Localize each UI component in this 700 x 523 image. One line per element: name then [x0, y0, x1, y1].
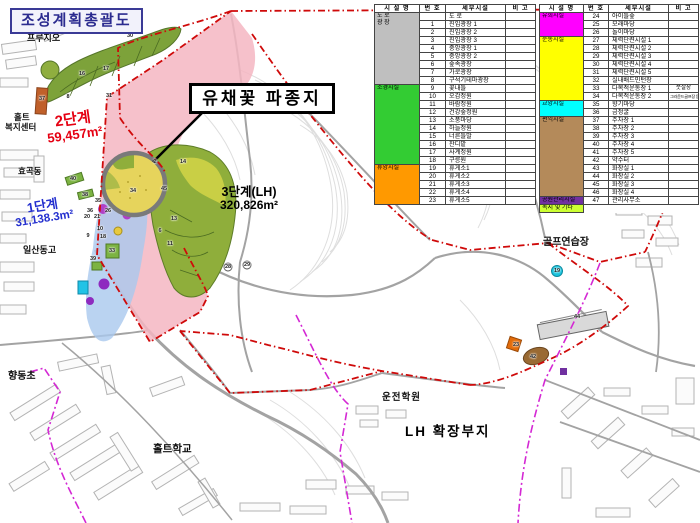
legend-cell — [669, 173, 699, 181]
legend-cell — [506, 125, 536, 133]
legend-cell: 다목적운동장 1 — [609, 85, 669, 93]
legend-row: 편익시설37주차장 1 — [540, 117, 699, 125]
legend-cell: 33 — [584, 85, 609, 93]
legend-cell — [669, 109, 699, 117]
legend-cell: 30 — [584, 61, 609, 69]
label-holt-school: 홀트학교 — [153, 441, 192, 456]
map-marker-20: 20 — [84, 214, 90, 220]
map-marker-8: 8 — [66, 94, 69, 100]
legend-cell: 바람정원 — [446, 101, 506, 109]
map-marker-38: 38 — [82, 192, 88, 198]
phase3-name: 3단계(LH) — [222, 185, 277, 199]
label-elementary: 향동초 — [8, 367, 36, 382]
legend-cell — [506, 61, 536, 69]
legend-cell: 체력단련시설 5 — [609, 69, 669, 77]
legend-cell — [506, 165, 536, 173]
map-marker-6: 6 — [158, 228, 161, 234]
legend-cell: 실내배드민턴장 — [609, 77, 669, 85]
legend-cell — [506, 157, 536, 165]
map-marker-19: 19 — [554, 268, 560, 274]
lh-expansion-label: LH 확장부지 — [405, 420, 490, 440]
legend-cell: 2 — [420, 29, 446, 37]
legend-row: 도 로 광 장도 로 — [375, 13, 536, 21]
legend-cell: 체력단련시설 1 — [609, 37, 669, 45]
legend-cell: 46 — [584, 189, 609, 197]
legend-cell: 37 — [584, 117, 609, 125]
legend-row: 교양시설35향기마당 — [540, 101, 699, 109]
phase3-label: 3단계(LH) 320,826m² — [220, 186, 278, 212]
legend-category: 교양시설 — [540, 101, 584, 117]
legend-table-right: 시 설 명번 호세부시설비 고유희시설24아이들숲25모래마당26놀이마당운동시… — [539, 4, 699, 213]
map-marker-17: 17 — [103, 66, 109, 72]
legend-cell: 45 — [584, 181, 609, 189]
legend-cell — [506, 117, 536, 125]
legend-cell — [669, 133, 699, 141]
legend-cell: 화장실 4 — [609, 189, 669, 197]
legend-cell — [669, 61, 699, 69]
legend-cell — [420, 13, 446, 21]
map-marker-33: 33 — [109, 248, 115, 254]
legend-cell: 소풍마당 — [446, 117, 506, 125]
legend-cell: 41 — [584, 149, 609, 157]
page-title: 조성계획총괄도 — [10, 8, 143, 34]
legend-cell — [506, 93, 536, 101]
legend-cell: 도 로 — [446, 13, 506, 21]
label-driving-school: 운전학원 — [382, 389, 421, 403]
legend-cell: 모래마당 — [609, 21, 669, 29]
legend-cell — [669, 125, 699, 133]
legend-cell: 24 — [584, 13, 609, 21]
legend-cell — [669, 197, 699, 205]
legend-cell — [506, 141, 536, 149]
legend-cell: 주차장 5 — [609, 149, 669, 157]
map-marker-37: 37 — [39, 96, 45, 102]
legend-cell: 7 — [420, 69, 446, 77]
legend-cell: 휴게소5 — [446, 197, 506, 205]
legend-cell: 18 — [420, 157, 446, 165]
legend-cell — [669, 157, 699, 165]
legend-cell: 꽃내들 — [446, 85, 506, 93]
map-marker-31: 31 — [106, 93, 112, 99]
label-holt-center-2: 복지센터 — [5, 121, 36, 133]
legend-cell — [609, 205, 669, 213]
legend-cell: 12 — [420, 109, 446, 117]
legend-cell — [669, 29, 699, 37]
legend-cell: 화장실 2 — [609, 173, 669, 181]
legend-cell: 주차장 1 — [609, 117, 669, 125]
legend-cell: 휴게소2 — [446, 173, 506, 181]
map-marker-28: 28 — [225, 264, 231, 270]
legend-cell — [506, 37, 536, 45]
legend-cell: 중앙광장 2 — [446, 53, 506, 61]
legend-cell: 약수터 — [609, 157, 669, 165]
map-marker-26: 26 — [105, 208, 111, 214]
map-marker-10: 10 — [97, 226, 103, 232]
legend-cell: 화장실 3 — [609, 181, 669, 189]
legend-cell: 진입광장 2 — [446, 29, 506, 37]
legend-cell — [669, 13, 699, 21]
legend-header: 비 고 — [506, 5, 536, 13]
legend-row: 조경시설9꽃내들 — [375, 85, 536, 93]
map-marker-40: 40 — [70, 176, 76, 182]
legend-cell: 주차장 3 — [609, 133, 669, 141]
map-marker-21: 21 — [94, 214, 100, 220]
legend-cell: 놀이마당 — [609, 29, 669, 37]
legend-cell: 10 — [420, 93, 446, 101]
legend-cell: 주차장 4 — [609, 141, 669, 149]
legend-cell: 3 — [420, 37, 446, 45]
legend-cell: 향기마당 — [609, 101, 669, 109]
legend-cell: 다목적운동장 2 — [609, 93, 669, 101]
legend-cell: 27 — [584, 37, 609, 45]
legend-cell: 체력단련시설 2 — [609, 45, 669, 53]
legend-cell: 그라운드골프장 등 — [669, 93, 699, 101]
map-marker-45: 45 — [161, 186, 167, 192]
legend-cell — [506, 149, 536, 157]
legend-cell: 하늘정원 — [446, 125, 506, 133]
legend-cell: 23 — [420, 197, 446, 205]
legend-row: 휴양시설19휴게소1 — [375, 165, 536, 173]
legend-row: 녹지 및 기타 — [540, 205, 699, 213]
map-marker-18: 18 — [100, 234, 106, 240]
map-marker-23: 23 — [513, 342, 519, 348]
legend-cell — [669, 117, 699, 125]
map-marker-35: 35 — [95, 198, 101, 204]
legend-cell: 체력단련시설 4 — [609, 61, 669, 69]
legend-cell: 42 — [584, 157, 609, 165]
legend-cell: 휴게소1 — [446, 165, 506, 173]
legend-table-left: 시 설 명번 호세부시설비 고도 로 광 장도 로1진입광장 12진입광장 23… — [374, 4, 536, 205]
legend-header: 비 고 — [669, 5, 699, 13]
legend-cell: 사계정원 — [446, 149, 506, 157]
green-blob — [41, 61, 59, 79]
legend-cell: 40 — [584, 141, 609, 149]
map-marker-9: 9 — [86, 233, 89, 239]
legend-cell — [506, 173, 536, 181]
legend-cell: 구석기테마광장 — [446, 77, 506, 85]
map-marker-16: 16 — [79, 71, 85, 77]
legend-cell: 4 — [420, 45, 446, 53]
legend-header: 시 설 명 — [375, 5, 420, 13]
legend-cell: 휴게소4 — [446, 189, 506, 197]
label-golf-range: 골프연습장 — [543, 233, 589, 248]
map-marker-44: 44 — [574, 314, 580, 320]
legend-cell: 금정굴 — [609, 109, 669, 117]
legend-category: 조경시설 — [375, 85, 420, 165]
legend-cell — [669, 141, 699, 149]
map-marker-13: 13 — [171, 216, 177, 222]
legend-cell: 21 — [420, 181, 446, 189]
legend-cell: 29 — [584, 53, 609, 61]
legend-cell — [506, 85, 536, 93]
legend-cell — [669, 189, 699, 197]
legend-category: 유희시설 — [540, 13, 584, 37]
map-marker-29: 29 — [244, 262, 250, 268]
legend-cell: 건강숲정원 — [446, 109, 506, 117]
legend-cell: 너른들말 — [446, 133, 506, 141]
legend-cell: 19 — [420, 165, 446, 173]
legend-cell: 가로광장 — [446, 69, 506, 77]
legend-category: 녹지 및 기타 — [540, 205, 584, 213]
legend-cell — [506, 45, 536, 53]
legend-header: 시 설 명 — [540, 5, 584, 13]
legend-row: 유희시설24아이들숲 — [540, 13, 699, 21]
legend-cell: 43 — [584, 165, 609, 173]
callout-rapeseed-label: 유채꽃 파종지 — [189, 83, 335, 114]
legend-cell: 13 — [420, 117, 446, 125]
legend-cell: 16 — [420, 141, 446, 149]
legend-cell: 진입광장 3 — [446, 37, 506, 45]
legend-cell: 34 — [584, 93, 609, 101]
map-marker-11: 11 — [167, 241, 173, 247]
legend-cell — [506, 53, 536, 61]
legend-cell: 체력단련시설 3 — [609, 53, 669, 61]
legend-cell: 31 — [584, 69, 609, 77]
map-marker-42: 42 — [530, 354, 536, 360]
legend-cell — [506, 197, 536, 205]
legend-cell: 17 — [420, 149, 446, 157]
legend-header: 세부시설 — [446, 5, 506, 13]
map-marker-14: 14 — [180, 159, 186, 165]
legend-cell — [506, 133, 536, 141]
legend-cell — [506, 69, 536, 77]
legend-category: 편익시설 — [540, 117, 584, 197]
legend-cell — [506, 109, 536, 117]
plan-map-canvas: 조성계획총괄도 유채꽃 파종지 2단계 59,457m² 1단계 31,138.… — [0, 0, 700, 523]
legend-cell: 진입광장 1 — [446, 21, 506, 29]
legend-row: 공원관리시설47관리사무소 — [540, 197, 699, 205]
legend-cell: 5 — [420, 53, 446, 61]
legend-cell: 28 — [584, 45, 609, 53]
legend-category: 공원관리시설 — [540, 197, 584, 205]
legend-cell: 1 — [420, 21, 446, 29]
legend-cell — [669, 165, 699, 173]
legend-cell: 38 — [584, 125, 609, 133]
legend-cell — [506, 29, 536, 37]
legend-cell — [669, 77, 699, 85]
legend-header: 세부시설 — [609, 5, 669, 13]
legend-cell — [669, 149, 699, 157]
legend-cell: 14 — [420, 125, 446, 133]
legend-cell — [669, 181, 699, 189]
legend-cell: 휴게소3 — [446, 181, 506, 189]
legend-cell: 8 — [420, 77, 446, 85]
legend-cell: 관리사무소 — [609, 197, 669, 205]
legend-cell — [669, 45, 699, 53]
legend-header: 번 호 — [420, 5, 446, 13]
legend-cell: 11 — [420, 101, 446, 109]
legend-cell: 20 — [420, 173, 446, 181]
legend-category: 휴양시설 — [375, 165, 420, 205]
legend-cell: 잔디밭 — [446, 141, 506, 149]
legend-cell: 32 — [584, 77, 609, 85]
legend-cell: 35 — [584, 101, 609, 109]
legend-row: 운동시설27체력단련시설 1 — [540, 37, 699, 45]
label-hyogok: 효곡동 — [18, 165, 41, 177]
legend-cell — [669, 205, 699, 213]
legend-category: 운동시설 — [540, 37, 584, 101]
legend-cell: 숲속광장 — [446, 61, 506, 69]
legend-cell — [506, 77, 536, 85]
legend-cell — [506, 101, 536, 109]
legend-cell: 구릉원 — [446, 157, 506, 165]
map-marker-39: 39 — [90, 256, 96, 262]
legend-cell: 9 — [420, 85, 446, 93]
legend-cell: 36 — [584, 109, 609, 117]
legend-cell: 22 — [420, 189, 446, 197]
legend-cell: 주차장 2 — [609, 125, 669, 133]
legend-cell: 아이들숲 — [609, 13, 669, 21]
legend-cell: 47 — [584, 197, 609, 205]
label-ilsan-high: 일산동고 — [23, 243, 56, 256]
legend-cell — [506, 181, 536, 189]
legend-cell — [506, 189, 536, 197]
legend-cell: 15 — [420, 133, 446, 141]
legend-cell: 25 — [584, 21, 609, 29]
map-marker-34: 34 — [130, 188, 136, 194]
legend-cell: 풋살장 — [669, 85, 699, 93]
legend-cell: 화장실 1 — [609, 165, 669, 173]
legend-cell: 중앙광장 1 — [446, 45, 506, 53]
legend-cell — [584, 205, 609, 213]
legend-header: 번 호 — [584, 5, 609, 13]
legend-cell — [669, 53, 699, 61]
legend-cell — [506, 13, 536, 21]
legend-cell — [669, 69, 699, 77]
legend-category: 도 로 광 장 — [375, 13, 420, 85]
legend-cell — [669, 101, 699, 109]
map-marker-2: 2 — [153, 159, 156, 165]
legend-cell — [506, 21, 536, 29]
legend-cell: 오감정원 — [446, 93, 506, 101]
legend-cell: 26 — [584, 29, 609, 37]
legend-cell — [669, 21, 699, 29]
legend-cell — [669, 37, 699, 45]
phase3-area: 320,826m² — [220, 199, 278, 212]
legend-cell: 39 — [584, 133, 609, 141]
legend-cell: 6 — [420, 61, 446, 69]
legend-cell: 44 — [584, 173, 609, 181]
